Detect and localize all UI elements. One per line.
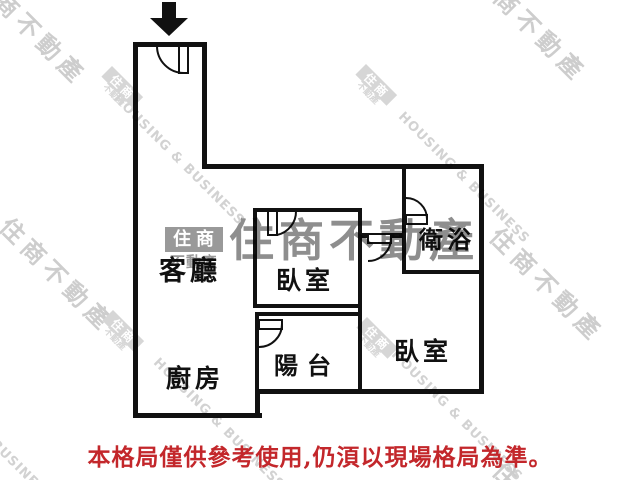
bathroom-door-leaf (406, 215, 427, 224)
room-label-balcony: 陽台 (274, 353, 340, 379)
wall (255, 389, 484, 394)
floorplan-image: 客廳 臥室 衛浴 臥室 陽台 廚房 住商 不動產 住商不動產 住商不動產 住商不… (0, 0, 640, 480)
doors (157, 46, 427, 347)
wall (133, 42, 207, 47)
floorplan-drawing (0, 0, 640, 480)
bedroom1-door-arc (277, 211, 296, 235)
wall (202, 164, 484, 169)
entry-down-arrow-icon (150, 2, 188, 36)
wall (479, 164, 484, 394)
wall (133, 42, 138, 418)
entry-door-leaf (179, 46, 188, 73)
bedroom2-door-leaf (368, 234, 391, 243)
bedroom1-door-leaf (268, 211, 277, 235)
wall (133, 413, 262, 418)
room-label-kitchen: 廚房 (166, 365, 224, 393)
room-label-bedroom2: 臥室 (394, 338, 452, 366)
wall (202, 42, 207, 169)
wall (253, 304, 362, 308)
wall (402, 270, 484, 274)
room-label-bedroom1: 臥室 (276, 267, 334, 295)
room-label-living: 客廳 (159, 257, 221, 287)
wall (255, 389, 260, 418)
wall (253, 208, 257, 308)
disclaimer-text: 本格局僅供參考使用,仍湏以現場格局為準。 (0, 438, 640, 472)
balcony-door-leaf (259, 320, 282, 329)
wall (255, 312, 362, 316)
room-label-bathroom: 衛浴 (419, 227, 475, 253)
